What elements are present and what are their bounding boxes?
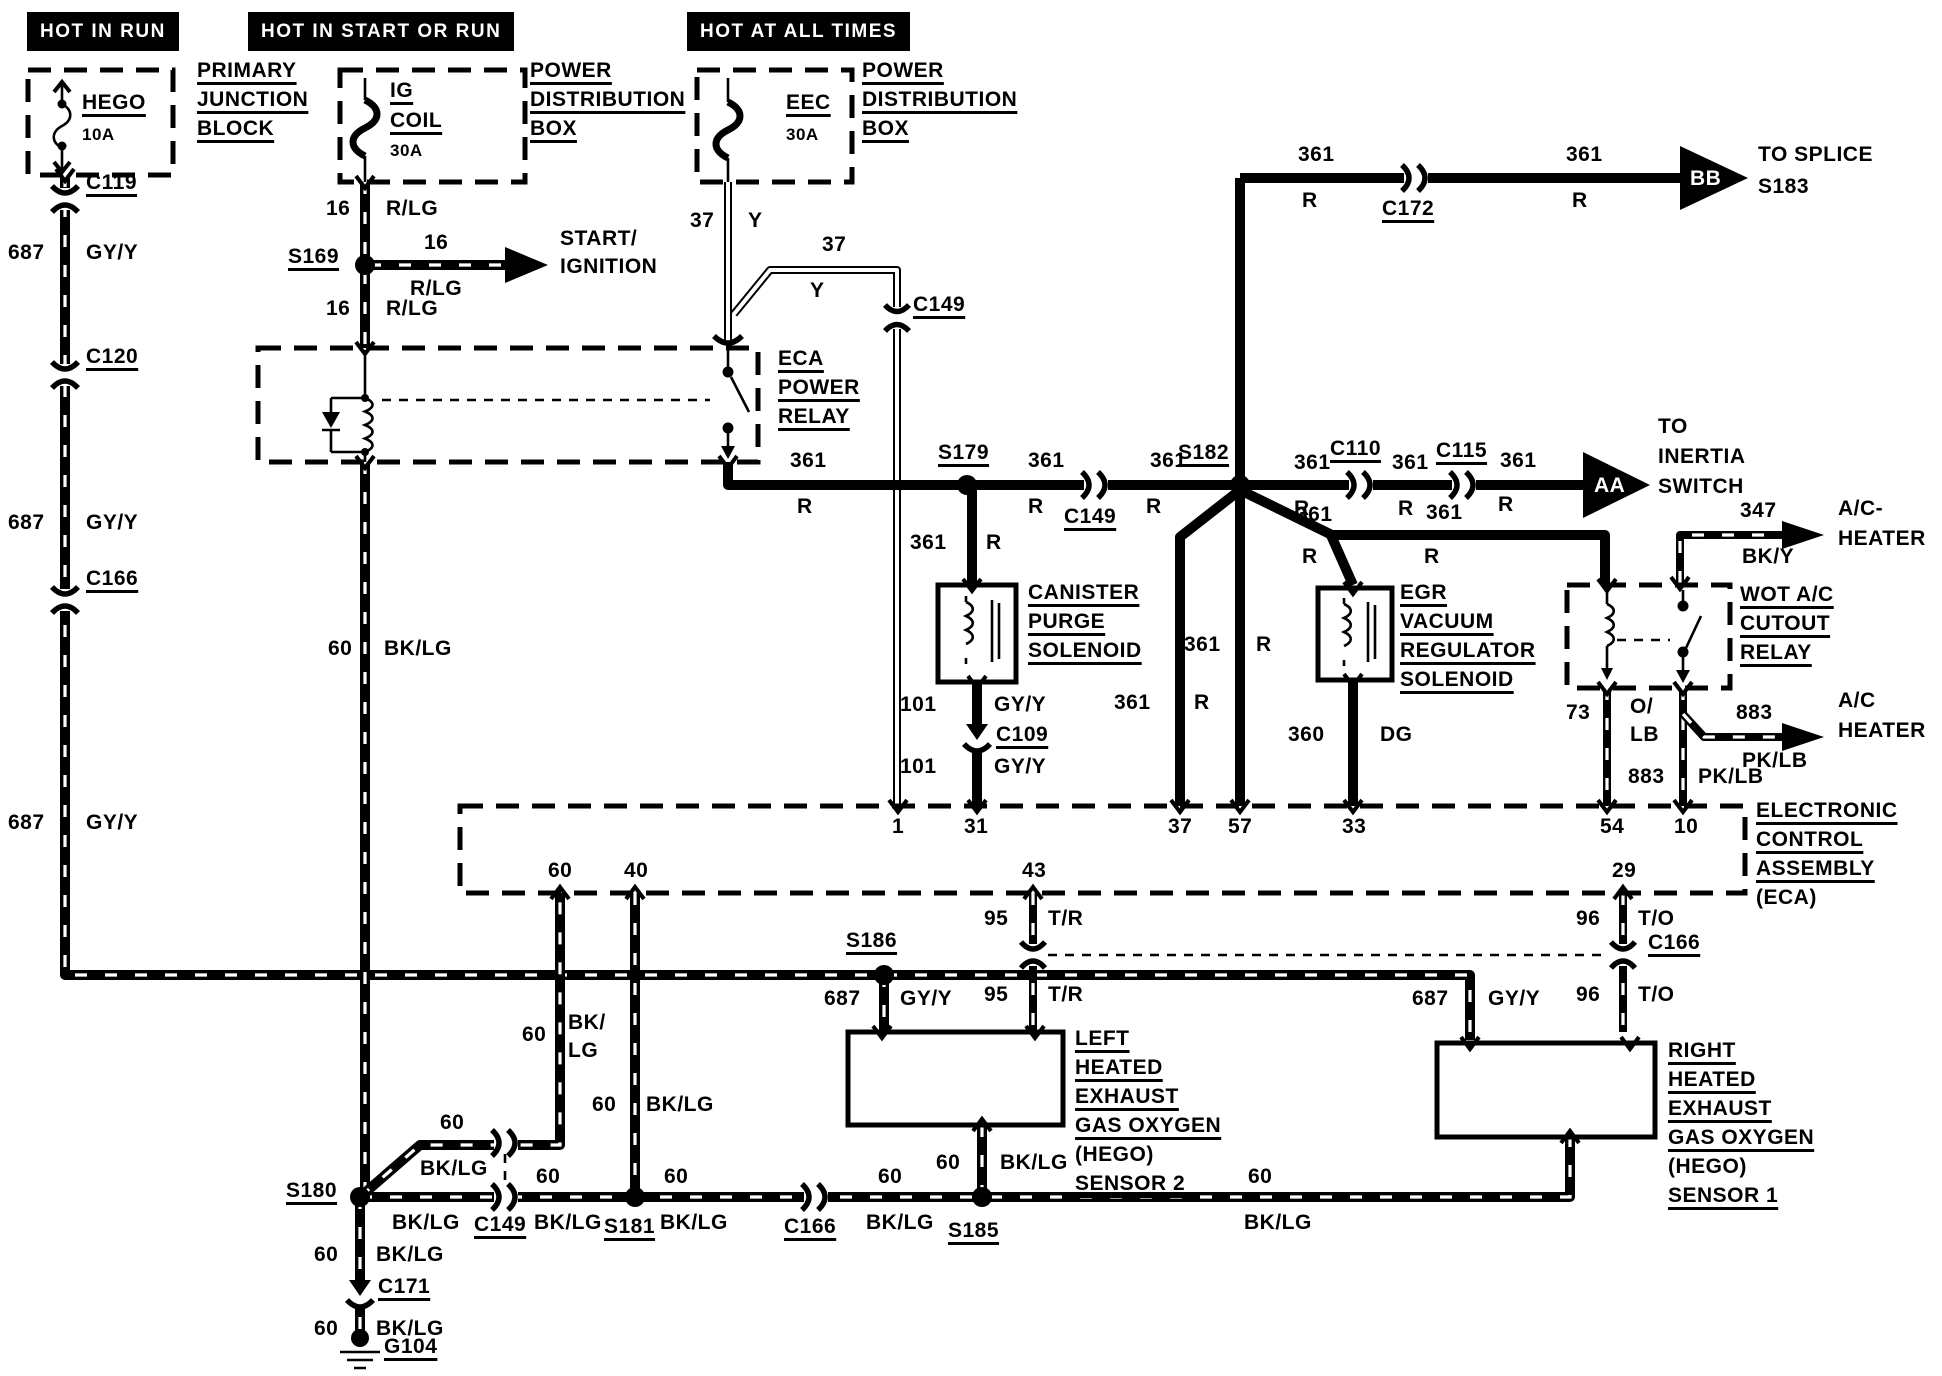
left-hego-label: LEFT HEATED EXHAUST GAS OXYGEN (HEGO) SE… xyxy=(1075,1024,1221,1198)
c166-left-connector xyxy=(52,587,78,613)
eca-pin-40: 40 xyxy=(624,860,648,882)
s180-label: S180 xyxy=(286,1180,337,1202)
wire-347-num: 347 xyxy=(1740,500,1777,522)
egr-solenoid-internals xyxy=(1344,598,1375,666)
start-ignition-arrow xyxy=(505,247,548,283)
wire-361-num: 361 xyxy=(910,532,947,554)
wire-883-color: PK/LB xyxy=(1698,766,1764,788)
s181-splice xyxy=(625,1187,645,1207)
wire-60-color: BK/LG xyxy=(646,1094,714,1116)
wot-relay-box xyxy=(1567,585,1730,688)
wire-60-color: BK/LG xyxy=(376,1244,444,1266)
wire-361-color: R xyxy=(797,496,813,518)
hego-fuse-symbol xyxy=(54,82,71,172)
eca-pin-57: 57 xyxy=(1228,816,1252,838)
wire-361-color: R xyxy=(1146,496,1162,518)
s182-splice xyxy=(1230,475,1250,495)
wire-60-color: BK/LG xyxy=(384,638,452,660)
s185-label: S185 xyxy=(948,1220,999,1242)
wire-361-num: 361 xyxy=(1028,450,1065,472)
wire-60-num: 60 xyxy=(328,638,352,660)
wire-37-num: 37 xyxy=(690,210,714,232)
wire-361-num: 361 xyxy=(1392,452,1429,474)
ac-heater-arrow xyxy=(1782,723,1824,751)
eec-fuse-symbol xyxy=(716,78,740,182)
eca-pin-37: 37 xyxy=(1168,816,1192,838)
egr-solenoid-box xyxy=(1318,588,1392,680)
wire-687-color: GY/Y xyxy=(900,988,952,1010)
diagram-graphics xyxy=(0,0,1942,1376)
wire-60-num: 60 xyxy=(536,1166,560,1188)
wire-361-color: R xyxy=(1424,546,1440,568)
wire-347-color: BK/Y xyxy=(1742,546,1794,568)
wire-60-num: 60 xyxy=(592,1094,616,1116)
wire-361-color: R xyxy=(1572,190,1588,212)
c119-label: C119 xyxy=(86,172,137,194)
wire-101-num: 101 xyxy=(900,694,937,716)
banner-hot-in-start-or-run: HOT IN START OR RUN xyxy=(248,12,514,51)
c110-connector xyxy=(1347,472,1373,498)
eca-power-relay-internals xyxy=(322,336,749,462)
wire-16-color: R/LG xyxy=(386,298,438,320)
c149-bottom-label: C149 xyxy=(474,1214,526,1236)
left-hego-box xyxy=(848,1032,1063,1125)
wire-16-num: 16 xyxy=(326,198,350,220)
wire-96-num: 96 xyxy=(1576,908,1600,930)
c115-label: C115 xyxy=(1436,440,1487,462)
wire-37-y xyxy=(728,182,897,806)
wire-687-color: GY/Y xyxy=(86,512,138,534)
s185-splice xyxy=(972,1187,992,1207)
c149-branch-label: C149 xyxy=(913,294,965,316)
start-ignition-text-1: START/ xyxy=(560,228,637,250)
canister-purge-label: CANISTER PURGE SOLENOID xyxy=(1028,578,1142,665)
inertia-text-2: INERTIA xyxy=(1658,446,1746,468)
wire-361-num: 361 xyxy=(1298,144,1335,166)
eca-pin-1: 1 xyxy=(892,816,904,838)
c149-main-label: C149 xyxy=(1064,506,1116,528)
s181-label: S181 xyxy=(604,1216,655,1238)
wire-60-num: 60 xyxy=(314,1318,338,1340)
c149-lower-connector xyxy=(492,1184,518,1210)
wire-883-num: 883 xyxy=(1736,702,1773,724)
s169-label: S169 xyxy=(288,246,339,268)
ac-heater-bottom-text-2: HEATER xyxy=(1838,720,1926,742)
eca-pin-31: 31 xyxy=(964,816,988,838)
c120-label: C120 xyxy=(86,346,138,368)
c166-95-connector xyxy=(1021,942,1045,968)
eca-label: ELECTRONIC CONTROL ASSEMBLY (ECA) xyxy=(1756,796,1898,912)
wire-60-color: BK/LG xyxy=(392,1212,460,1234)
wire-361-color: R xyxy=(986,532,1002,554)
wire-16-num: 16 xyxy=(424,232,448,254)
wire-95-color: T/R xyxy=(1048,908,1083,930)
wire-361-color: R xyxy=(1302,190,1318,212)
wire-73-color-2: LB xyxy=(1630,724,1659,746)
wire-361-color: R xyxy=(1498,494,1514,516)
s182-label: S182 xyxy=(1178,442,1229,464)
wire-361-num: 361 xyxy=(1114,692,1151,714)
ig-coil-label-1: IG xyxy=(390,80,413,102)
eca-pin-54: 54 xyxy=(1600,816,1624,838)
c172-label: C172 xyxy=(1382,198,1434,220)
wire-101-color: GY/Y xyxy=(994,694,1046,716)
c171-connector xyxy=(347,1280,373,1307)
wire-361-num: 361 xyxy=(1566,144,1603,166)
wire-96-color: T/O xyxy=(1638,908,1675,930)
wire-101-color: GY/Y xyxy=(994,756,1046,778)
wire-60-bklg xyxy=(360,462,1570,1332)
wire-60-color-2: LG xyxy=(568,1040,598,1062)
hego-fuse-box xyxy=(28,70,173,175)
wire-361-color: R xyxy=(1398,498,1414,520)
ac-heater-top-text-1: A/C- xyxy=(1838,498,1883,520)
s169-splice xyxy=(355,255,375,275)
wire-16-color: R/LG xyxy=(386,198,438,220)
eca-power-relay-box xyxy=(258,348,758,462)
wire-60-color: BK/LG xyxy=(660,1212,728,1234)
wire-60-color: BK/LG xyxy=(534,1212,602,1234)
wire-60-num: 60 xyxy=(664,1166,688,1188)
c172-connector xyxy=(1402,165,1428,191)
c110-label: C110 xyxy=(1330,438,1381,460)
wire-101-num: 101 xyxy=(900,756,937,778)
s186-label: S186 xyxy=(846,930,897,952)
arrow-aa-text: AA xyxy=(1594,475,1625,497)
wire-96-num: 96 xyxy=(1576,984,1600,1006)
wot-relay-internals xyxy=(1601,588,1701,683)
s179-splice xyxy=(957,475,977,495)
c166-right-label: C166 xyxy=(1648,932,1700,954)
ig-coil-label-2: COIL xyxy=(390,110,442,132)
wire-60-color-1: BK/ xyxy=(568,1012,606,1034)
c149-branch-connector xyxy=(885,305,909,331)
wire-687-num: 687 xyxy=(824,988,861,1010)
wire-60-color: BK/LG xyxy=(866,1212,934,1234)
s179-label: S179 xyxy=(938,442,989,464)
hego-fuse-label: HEGO xyxy=(82,92,146,114)
ac-heater-bottom-text-1: A/C xyxy=(1838,690,1876,712)
c166-96-connector xyxy=(1611,942,1635,968)
wire-37-num: 37 xyxy=(822,234,846,256)
wire-361-color: R xyxy=(1028,496,1044,518)
c166-bottom-connector xyxy=(802,1184,828,1210)
c149-upper-connector xyxy=(492,1130,518,1156)
wire-687-color: GY/Y xyxy=(1488,988,1540,1010)
c120-connector xyxy=(52,362,78,388)
inertia-text-3: SWITCH xyxy=(1658,476,1744,498)
wire-687-num: 687 xyxy=(8,812,45,834)
wire-883-num: 883 xyxy=(1628,766,1665,788)
splice-s183-text-2: S183 xyxy=(1758,176,1809,198)
arrow-bb-text: BB xyxy=(1690,168,1721,190)
wire-95-num: 95 xyxy=(984,908,1008,930)
eec-fuse-rating: 30A xyxy=(786,126,819,144)
c109-connector xyxy=(964,724,990,751)
wire-361-num: 361 xyxy=(1500,450,1537,472)
start-ignition-text-2: IGNITION xyxy=(560,256,657,278)
banner-hot-in-run: HOT IN RUN xyxy=(27,12,179,51)
c166-bottom-label: C166 xyxy=(784,1216,836,1238)
c115-connector xyxy=(1450,472,1476,498)
wire-60-num: 60 xyxy=(440,1112,464,1134)
wire-60-num: 60 xyxy=(936,1152,960,1174)
wire-60-color: BK/LG xyxy=(420,1158,488,1180)
ig-coil-fuse-symbol xyxy=(353,78,377,182)
wire-687-num: 687 xyxy=(1412,988,1449,1010)
g104-ground-symbol xyxy=(340,1329,380,1368)
canister-purge-solenoid-box xyxy=(938,585,1016,682)
c166-left-label: C166 xyxy=(86,568,138,590)
c149-main-connector xyxy=(1082,472,1108,498)
wire-360-num: 360 xyxy=(1288,724,1325,746)
wire-60-num: 60 xyxy=(522,1024,546,1046)
eca-power-relay-label: ECA POWER RELAY xyxy=(778,344,860,431)
wire-361-color: R xyxy=(1256,634,1272,656)
hego-fuse-rating: 10A xyxy=(82,126,115,144)
ac-heater-top-text-2: HEATER xyxy=(1838,528,1926,550)
wire-687-color: GY/Y xyxy=(86,812,138,834)
wire-73-num: 73 xyxy=(1566,702,1590,724)
right-hego-box xyxy=(1437,1043,1655,1137)
s180-splice xyxy=(350,1187,370,1207)
eca-pin-60: 60 xyxy=(548,860,572,882)
c109-label: C109 xyxy=(996,724,1048,746)
g104-label: G104 xyxy=(384,1336,437,1358)
wot-relay-label: WOT A/C CUTOUT RELAY xyxy=(1740,580,1834,667)
wire-60-num: 60 xyxy=(314,1244,338,1266)
banner-hot-at-all-times: HOT AT ALL TIMES xyxy=(687,12,910,51)
egr-solenoid-label: EGR VACUUM REGULATOR SOLENOID xyxy=(1400,578,1536,694)
wire-687-num: 687 xyxy=(8,242,45,264)
s186-splice xyxy=(874,965,894,985)
canister-solenoid-internals xyxy=(966,596,999,664)
wire-37-color: Y xyxy=(810,280,825,302)
c119-connector xyxy=(52,186,78,212)
wire-73-color-1: O/ xyxy=(1630,696,1653,718)
wire-16-num: 16 xyxy=(326,298,350,320)
wire-361-color: R xyxy=(1194,692,1210,714)
power-dist-box-right-label: POWER DISTRIBUTION BOX xyxy=(862,56,1017,143)
primary-junction-block-label: PRIMARY JUNCTION BLOCK xyxy=(197,56,308,143)
ig-coil-rating: 30A xyxy=(390,142,423,160)
eec-fuse-box xyxy=(697,70,852,182)
eca-pin-43: 43 xyxy=(1022,860,1046,882)
eca-pin-29: 29 xyxy=(1612,860,1636,882)
splice-s183-text-1: TO SPLICE xyxy=(1758,144,1873,166)
wire-361-num: 361 xyxy=(790,450,827,472)
wire-361-color: R xyxy=(1302,546,1318,568)
wire-687-num: 687 xyxy=(8,512,45,534)
inertia-text-1: TO xyxy=(1658,416,1688,438)
wire-361-num: 361 xyxy=(1294,452,1331,474)
wire-361-num: 361 xyxy=(1296,504,1333,526)
wire-360-color: DG xyxy=(1380,724,1413,746)
eca-pin-10: 10 xyxy=(1674,816,1698,838)
wire-60-color: BK/LG xyxy=(1244,1212,1312,1234)
wire-687-color: GY/Y xyxy=(86,242,138,264)
eca-pin-33: 33 xyxy=(1342,816,1366,838)
power-dist-box-left-label: POWER DISTRIBUTION BOX xyxy=(530,56,685,143)
eec-fuse-label: EEC xyxy=(786,92,831,114)
wire-95-num: 95 xyxy=(984,984,1008,1006)
wire-60-num: 60 xyxy=(1248,1166,1272,1188)
wire-96-color: T/O xyxy=(1638,984,1675,1006)
wire-95-color: T/R xyxy=(1048,984,1083,1006)
wire-60-color: BK/LG xyxy=(1000,1152,1068,1174)
eca-box xyxy=(460,806,1745,893)
wiring-diagram: HOT IN RUN HOT IN START OR RUN HOT AT AL… xyxy=(0,0,1942,1376)
wire-361-num: 361 xyxy=(1184,634,1221,656)
wire-60-num: 60 xyxy=(878,1166,902,1188)
c171-label: C171 xyxy=(378,1276,430,1298)
wire-37-color: Y xyxy=(748,210,763,232)
right-hego-label: RIGHT HEATED EXHAUST GAS OXYGEN (HEGO) S… xyxy=(1668,1036,1814,1210)
wire-687-gyy xyxy=(65,175,1470,1040)
wire-361-num: 361 xyxy=(1426,502,1463,524)
